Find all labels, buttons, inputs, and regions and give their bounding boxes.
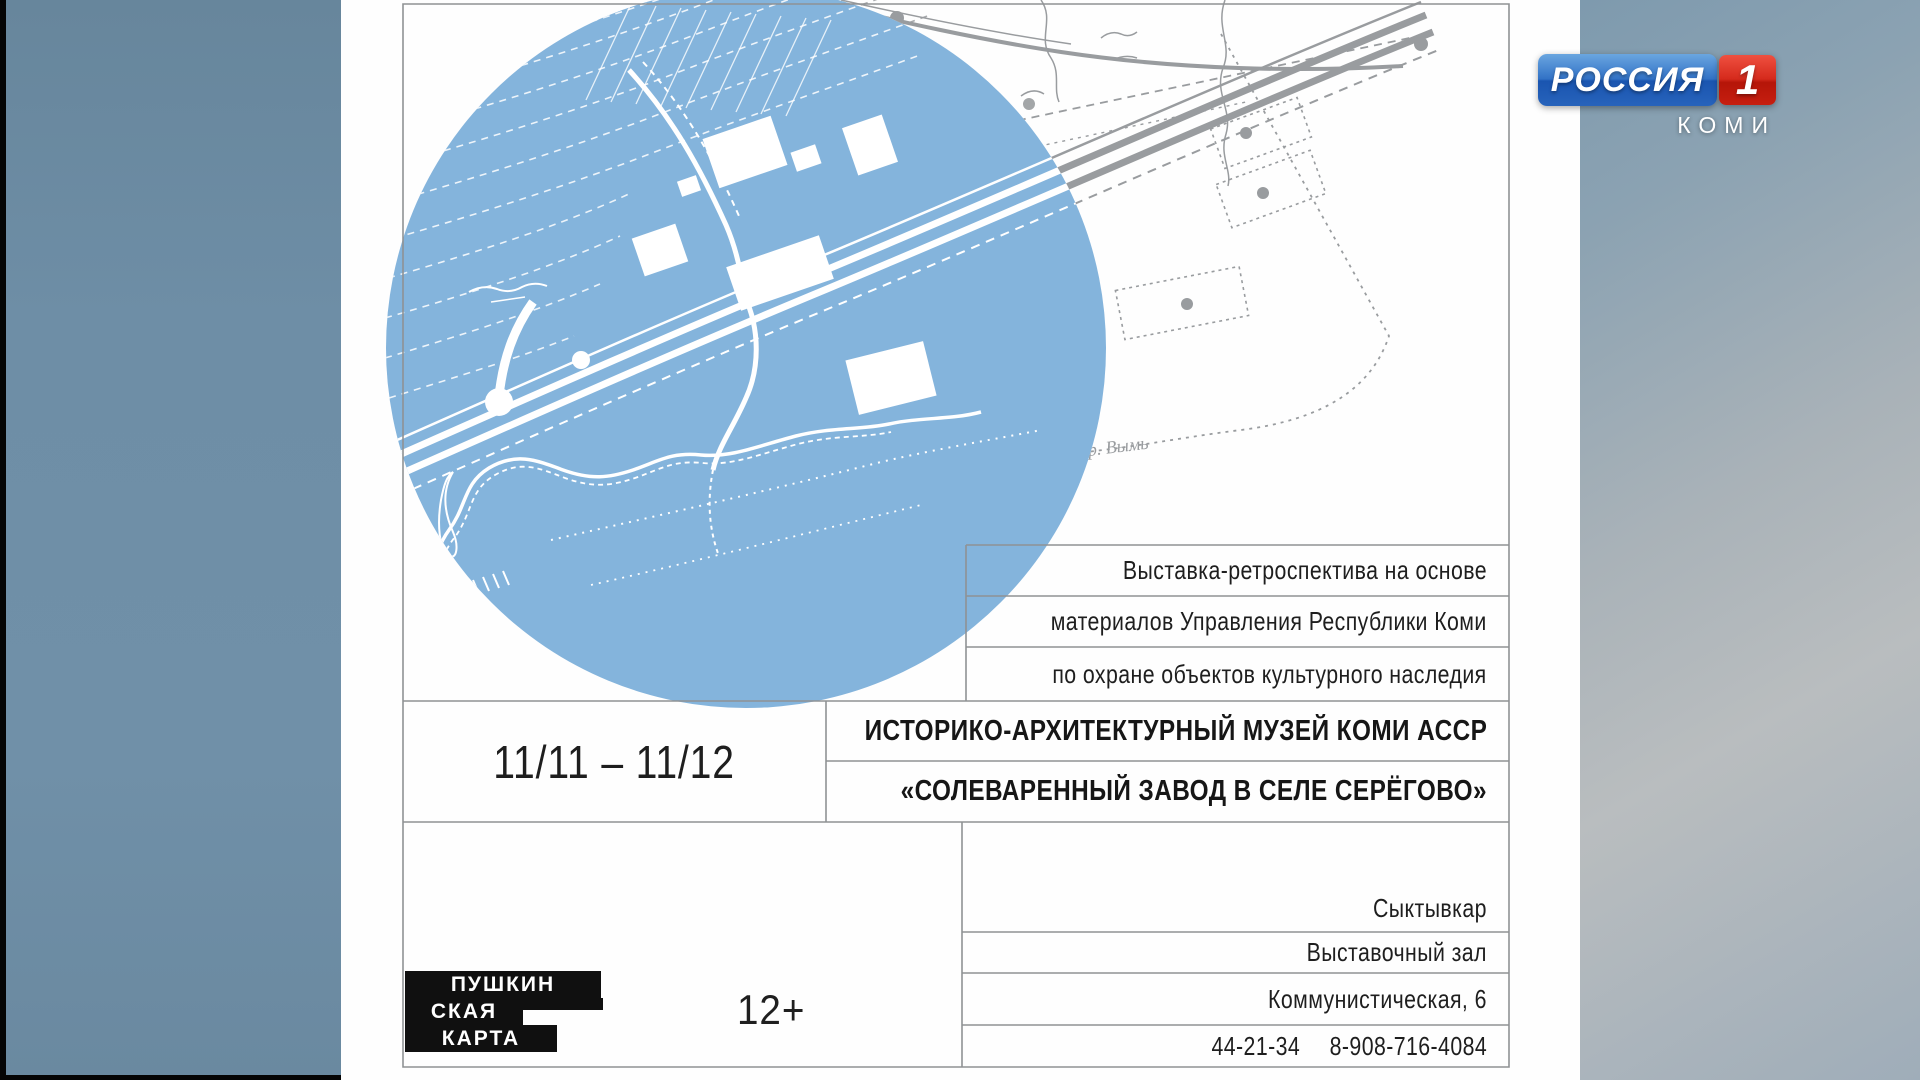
exhibition-title-text: «СОЛЕВАРЕННЫЙ ЗАВОД В СЕЛЕ СЕРЁГОВО» [901,775,1487,808]
museum-title: ИСТОРИКО-АРХИТЕКТУРНЫЙ МУЗЕЙ КОМИ АССР [826,701,1509,761]
pushkin-card-line-3: КАРТА [405,1025,557,1052]
phones-row: 44-21-34 8-908-716-4084 [962,1025,1509,1067]
exhibition-poster: р. Вымь Выставка-ретроспектива на основе… [341,0,1580,1080]
pushkin-card-line-1: ПУШКИН [405,971,601,998]
screen-left-edge [0,0,6,1080]
info-line-2-text: материалов Управления Республики Коми [1051,606,1487,637]
address-row: Коммунистическая, 6 [962,973,1509,1025]
phones: 44-21-34 8-908-716-4084 [1211,1031,1487,1062]
pushkin-card-line-2: СКАЯ [405,998,523,1025]
info-line-1-text: Выставка-ретроспектива на основе [1123,555,1487,586]
background-left-panel [0,0,341,1080]
phone-mobile: 8-908-716-4084 [1330,1031,1487,1062]
museum-title-text: ИСТОРИКО-АРХИТЕКТУРНЫЙ МУЗЕЙ КОМИ АССР [864,715,1487,748]
info-line-1: Выставка-ретроспектива на основе [966,545,1509,596]
channel-logo: РОССИЯ 1 КОМИ [1538,54,1778,144]
info-line-3: по охране объектов культурного наследия [966,647,1509,701]
age-rating: 12+ [737,986,805,1034]
channel-region: КОМИ [1538,112,1776,139]
venue-row: Выставочный зал [962,932,1509,973]
channel-name: РОССИЯ [1551,61,1704,100]
tv-frame: р. Вымь Выставка-ретроспектива на основе… [0,0,1920,1080]
city-text: Сыктывкар [1373,893,1487,924]
exhibition-title: «СОЛЕВАРЕННЫЙ ЗАВОД В СЕЛЕ СЕРЁГОВО» [826,761,1509,822]
pushkin-card-logo: ПУШКИН СКАЯ КАРТА [405,971,601,1052]
channel-name-badge: РОССИЯ [1538,54,1717,106]
info-line-3-text: по охране объектов культурного наследия [1053,659,1487,690]
exhibition-dates: 11/11 – 11/12 [403,701,826,822]
address-text: Коммунистическая, 6 [1268,984,1487,1015]
channel-number: 1 [1736,56,1759,104]
background-right-panel [1580,0,1920,1080]
phone-local: 44-21-34 [1211,1031,1300,1062]
venue-text: Выставочный зал [1307,937,1487,968]
exhibition-dates-text: 11/11 – 11/12 [494,735,736,789]
screen-bottom-edge [0,1075,341,1080]
city-row: Сыктывкар [962,822,1509,932]
channel-number-badge: 1 [1719,55,1776,105]
info-line-2: материалов Управления Республики Коми [966,596,1509,647]
pushkin-card-logo-bar [523,998,603,1010]
